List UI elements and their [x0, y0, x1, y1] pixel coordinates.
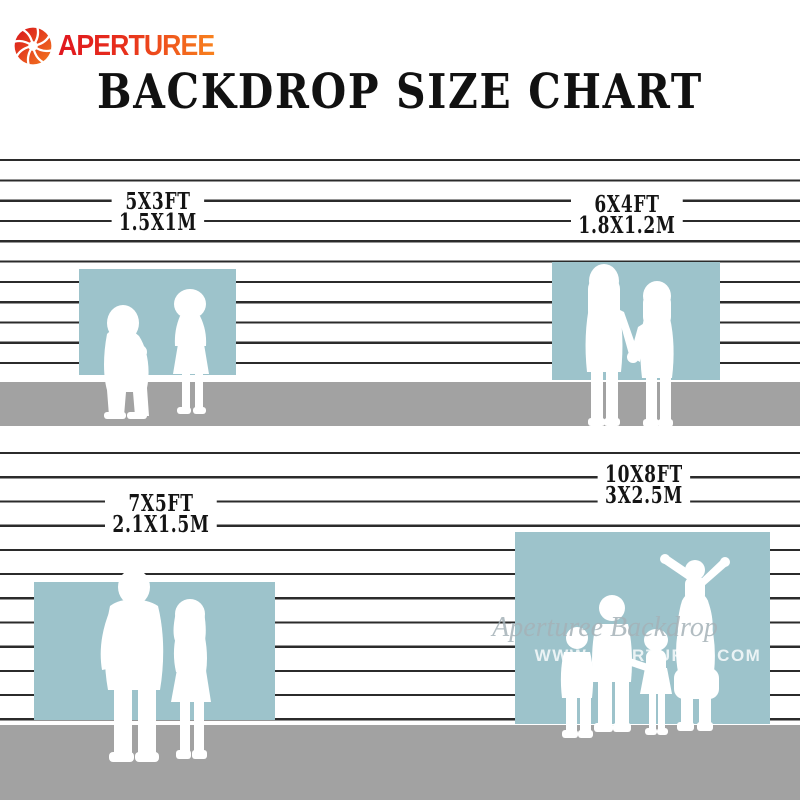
size-meters: 2.1X1.5M	[112, 514, 209, 535]
size-meters: 1.8X1.2M	[578, 215, 675, 236]
size-label-10x8ft: 10X8FT 3X2.5M	[598, 462, 691, 508]
backdrop-panel-10x8ft	[515, 532, 770, 724]
brand-name: APERTUREE	[58, 30, 214, 63]
brand-logo: APERTUREE	[12, 25, 228, 67]
page-title: BACKDROP SIZE CHART	[60, 64, 740, 120]
backdrop-size-chart: APERTUREE BACKDROP SIZE CHART 5X3FT 1.5X…	[0, 0, 800, 800]
size-label-6x4ft: 6X4FT 1.8X1.2M	[571, 192, 683, 238]
size-label-7x5ft: 7X5FT 2.1X1.5M	[105, 491, 217, 537]
backdrop-panel-6x4ft	[552, 262, 720, 380]
floor-band-bottom	[0, 725, 800, 800]
aperture-icon	[12, 25, 54, 67]
backdrop-panel-7x5ft	[34, 582, 275, 720]
size-meters: 1.5X1M	[119, 212, 197, 233]
size-meters: 3X2.5M	[605, 485, 683, 506]
size-label-5x3ft: 5X3FT 1.5X1M	[112, 189, 205, 235]
backdrop-panel-5x3ft	[79, 269, 236, 375]
floor-band-top	[0, 382, 800, 426]
